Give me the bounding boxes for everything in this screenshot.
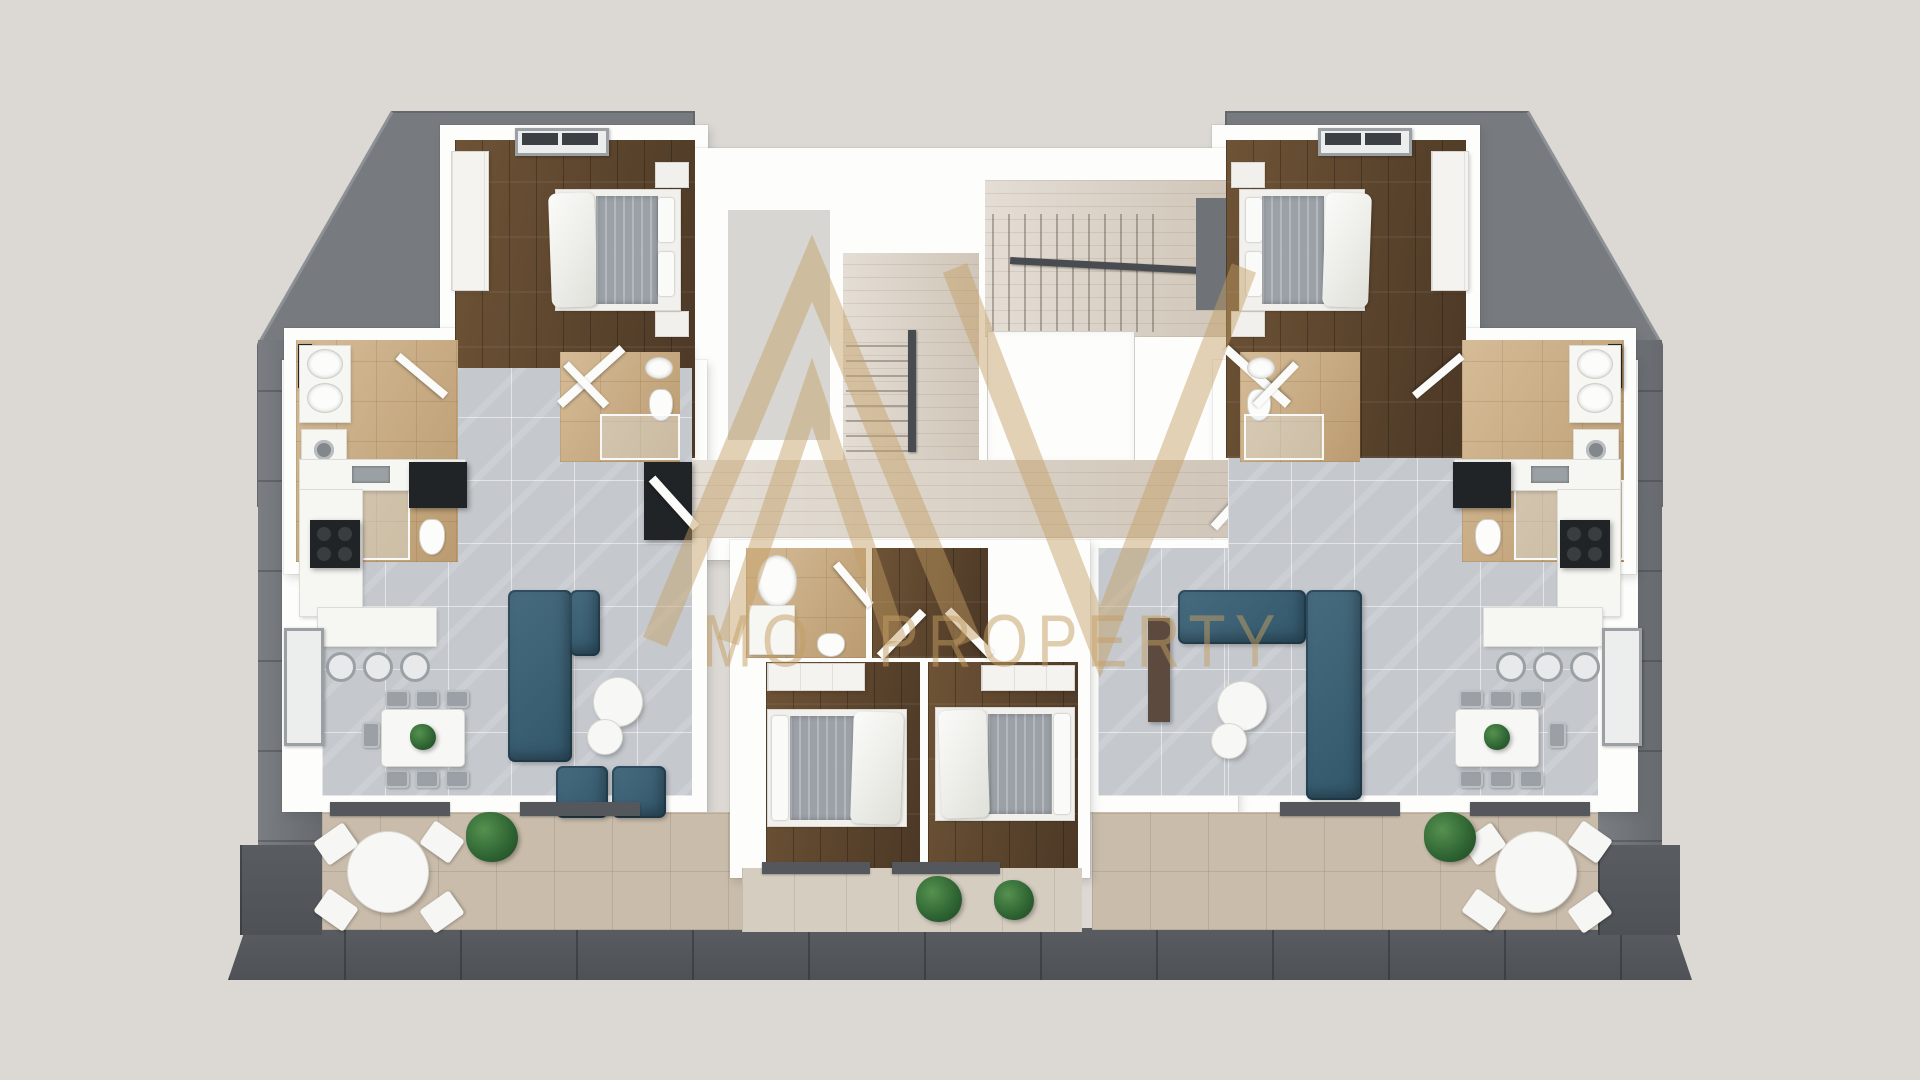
watermark-logo — [0, 0, 1920, 1080]
watermark-v — [955, 268, 1244, 642]
floorplan-render: MO PROPERTY — [0, 0, 1920, 1080]
watermark-triangle-outer — [655, 268, 968, 642]
